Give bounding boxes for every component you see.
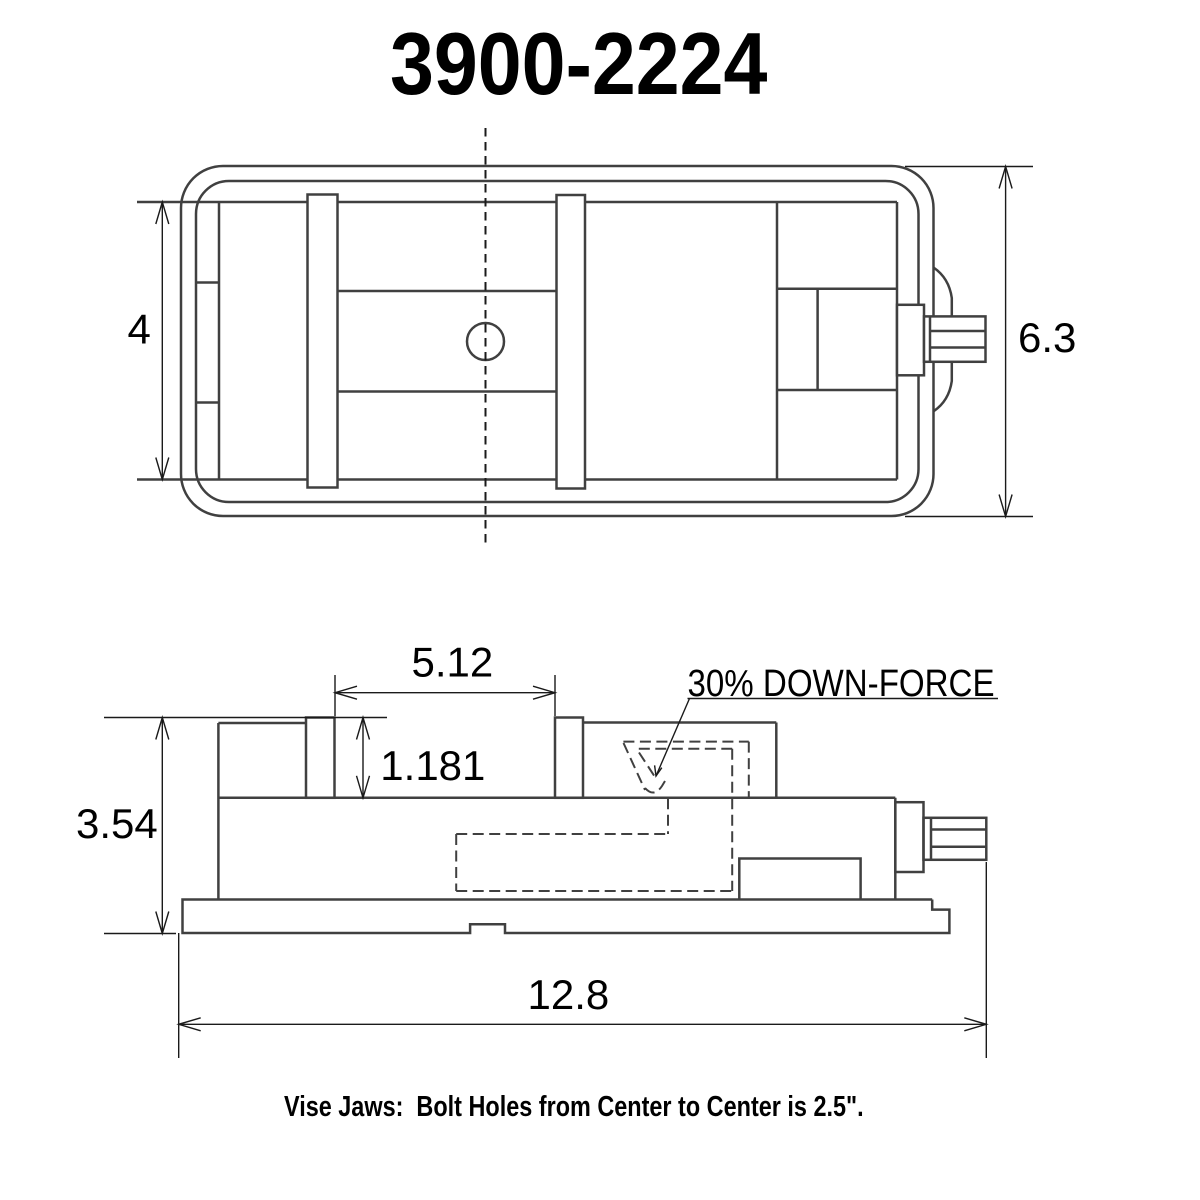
svg-text:6.3: 6.3	[1018, 314, 1076, 361]
svg-text:1.181: 1.181	[380, 742, 485, 789]
svg-text:3900-2224: 3900-2224	[390, 14, 768, 113]
svg-text:12.8: 12.8	[528, 971, 610, 1018]
svg-text:5.12: 5.12	[412, 639, 494, 686]
svg-text:Vise Jaws: Bolt Holes from Ce: Vise Jaws: Bolt Holes from Center to Cen…	[284, 1090, 864, 1123]
svg-text:3.54: 3.54	[76, 800, 158, 847]
svg-text:30% DOWN-FORCE: 30% DOWN-FORCE	[688, 662, 995, 705]
svg-text:4: 4	[128, 305, 151, 352]
